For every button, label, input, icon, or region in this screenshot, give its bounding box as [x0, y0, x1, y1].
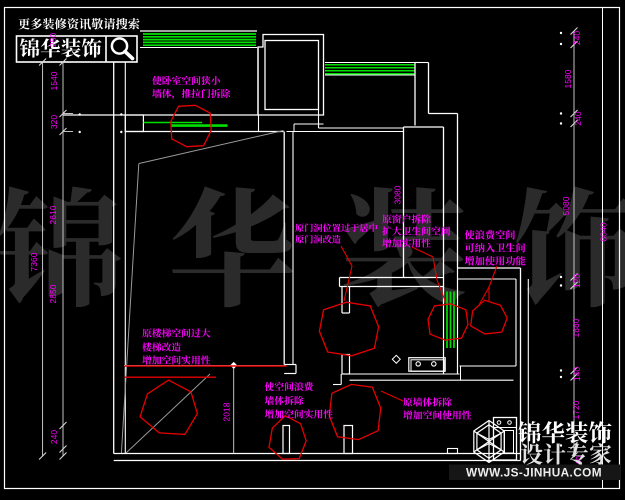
- svg-text:7360: 7360: [29, 252, 39, 271]
- svg-text:1580: 1580: [563, 69, 573, 88]
- svg-text:1720: 1720: [571, 400, 581, 419]
- svg-text:8040: 8040: [599, 222, 609, 241]
- svg-text:240: 240: [572, 31, 582, 45]
- svg-text:2018: 2018: [222, 402, 232, 421]
- svg-text:2610: 2610: [48, 205, 58, 224]
- svg-text:5080: 5080: [561, 196, 571, 215]
- svg-text:240: 240: [573, 111, 583, 125]
- svg-text:320: 320: [49, 115, 59, 129]
- svg-text:240: 240: [49, 430, 59, 444]
- svg-text:2850: 2850: [48, 284, 58, 303]
- svg-text:250: 250: [48, 33, 58, 47]
- svg-text:1540: 1540: [49, 71, 59, 90]
- svg-text:1880: 1880: [571, 318, 581, 337]
- svg-text:140: 140: [572, 367, 582, 381]
- svg-text:WWW.JS-JINHUA.COM: WWW.JS-JINHUA.COM: [466, 466, 602, 480]
- svg-text:120: 120: [572, 274, 582, 288]
- svg-text:3080: 3080: [393, 185, 403, 204]
